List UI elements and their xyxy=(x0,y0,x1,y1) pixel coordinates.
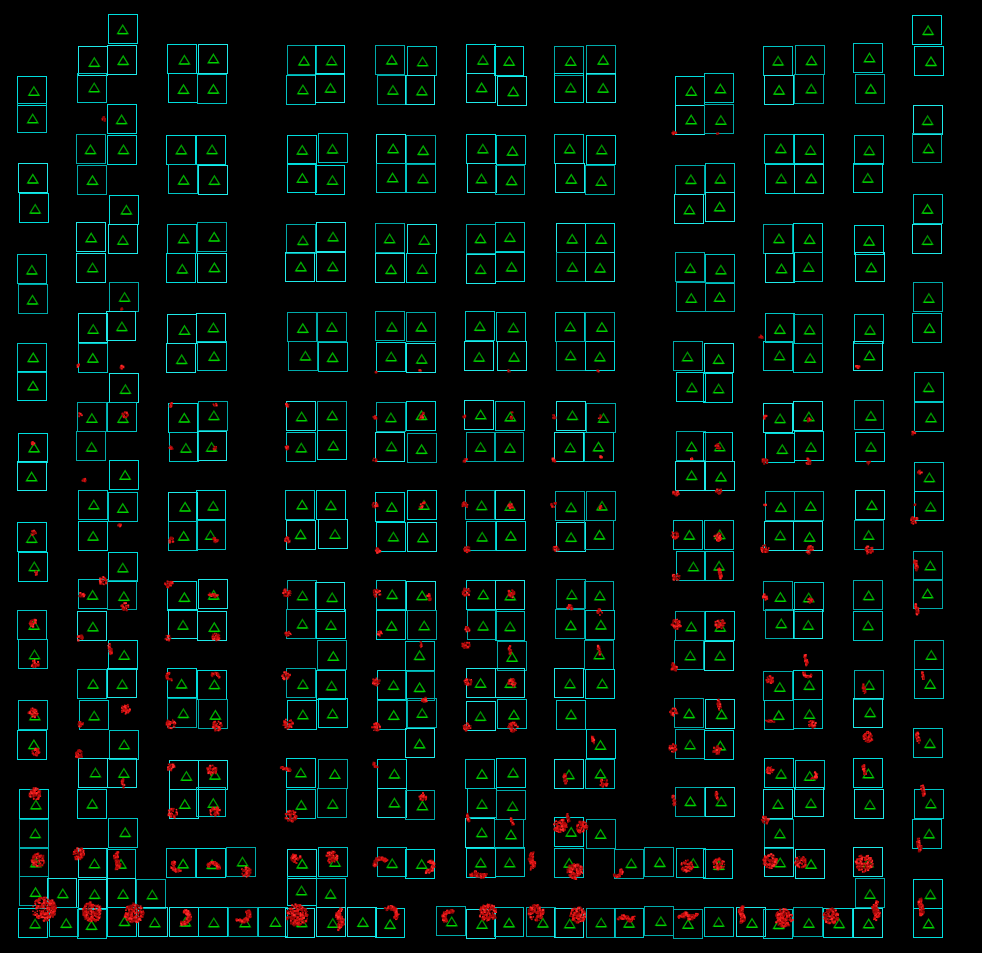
grid-cell-box xyxy=(138,907,168,937)
grid-cell-box xyxy=(795,760,825,790)
triangle-marker xyxy=(205,143,219,156)
triangle-marker xyxy=(802,261,816,274)
grid-cell-box xyxy=(675,252,705,282)
red-blob xyxy=(117,523,122,527)
triangle-marker xyxy=(503,500,517,513)
triangle-marker xyxy=(207,589,221,602)
grid-cell-box xyxy=(794,164,824,194)
grid-cell-box xyxy=(18,284,48,314)
grid-cell-box xyxy=(794,431,824,461)
grid-cell-box xyxy=(317,401,347,431)
grid-cell-box xyxy=(705,192,735,222)
grid-cell-box xyxy=(765,164,795,194)
triangle-marker xyxy=(326,917,340,930)
triangle-marker xyxy=(207,350,221,363)
grid-cell-box xyxy=(554,46,584,76)
triangle-marker xyxy=(415,707,429,720)
grid-cell-box xyxy=(17,610,47,640)
grid-cell-box xyxy=(407,610,437,640)
grid-cell-box xyxy=(106,878,136,908)
triangle-marker xyxy=(325,679,339,692)
triangle-marker xyxy=(862,235,876,248)
grid-cell-box xyxy=(676,431,706,461)
grid-cell-box xyxy=(584,640,614,670)
triangle-marker xyxy=(685,381,699,394)
triangle-marker xyxy=(206,52,220,65)
grid-cell-box xyxy=(167,314,197,344)
triangle-marker xyxy=(268,916,282,929)
grid-cell-box xyxy=(318,698,348,728)
triangle-marker xyxy=(683,262,697,275)
grid-cell-box xyxy=(376,580,406,610)
triangle-marker xyxy=(56,887,70,900)
triangle-marker xyxy=(864,83,878,96)
grid-cell-box xyxy=(914,372,944,402)
triangle-marker xyxy=(86,530,100,543)
grid-cell-box xyxy=(166,135,196,165)
grid-cell-box xyxy=(168,492,198,522)
grid-cell-box xyxy=(317,788,347,818)
triangle-marker xyxy=(28,917,42,930)
grid-cell-box xyxy=(198,401,228,431)
triangle-marker xyxy=(804,441,818,454)
triangle-marker xyxy=(504,828,518,841)
grid-cell-box xyxy=(169,432,199,462)
triangle-marker xyxy=(713,739,727,752)
grid-cell-box xyxy=(107,907,137,937)
triangle-marker xyxy=(921,587,935,600)
grid-cell-box xyxy=(675,461,705,491)
triangle-marker xyxy=(774,768,788,781)
grid-cell-box xyxy=(585,669,615,699)
grid-cell-box xyxy=(196,490,226,520)
triangle-marker xyxy=(595,321,609,334)
triangle-marker xyxy=(415,263,429,276)
triangle-marker xyxy=(86,620,100,633)
triangle-marker xyxy=(416,531,430,544)
triangle-marker xyxy=(594,619,608,632)
triangle-marker xyxy=(713,621,727,634)
grid-cell-box xyxy=(167,44,197,74)
grid-cell-box xyxy=(196,848,226,878)
triangle-marker xyxy=(386,84,400,97)
grid-cell-box xyxy=(375,223,405,253)
triangle-marker xyxy=(476,54,490,67)
grid-cell-box xyxy=(556,223,586,253)
grid-cell-box xyxy=(703,849,733,879)
triangle-marker xyxy=(86,261,100,274)
grid-cell-box xyxy=(854,789,884,819)
grid-cell-box xyxy=(78,490,108,520)
triangle-marker xyxy=(59,917,73,930)
grid-cell-box xyxy=(169,907,199,937)
triangle-marker xyxy=(295,410,309,423)
triangle-marker xyxy=(474,263,488,276)
triangle-marker xyxy=(682,529,696,542)
triangle-marker xyxy=(177,83,191,96)
triangle-marker xyxy=(804,172,818,185)
triangle-marker xyxy=(326,143,340,156)
triangle-marker xyxy=(178,501,192,514)
grid-cell-box xyxy=(168,609,198,639)
grid-cell-box xyxy=(554,817,584,847)
grid-cell-box xyxy=(585,341,615,371)
grid-cell-box xyxy=(109,460,139,490)
triangle-marker xyxy=(87,81,101,94)
grid-cell-box xyxy=(585,165,615,195)
triangle-marker xyxy=(25,264,39,277)
grid-cell-box xyxy=(375,253,405,283)
grid-cell-box xyxy=(436,906,466,936)
grid-cell-box xyxy=(556,579,586,609)
grid-cell-box xyxy=(19,819,49,849)
triangle-marker xyxy=(85,798,99,811)
triangle-marker xyxy=(863,324,877,337)
grid-cell-box xyxy=(555,609,585,639)
triangle-marker xyxy=(413,681,427,694)
grid-cell-box xyxy=(405,641,435,671)
grid-cell-box xyxy=(675,787,705,817)
triangle-marker xyxy=(594,767,608,780)
triangle-marker xyxy=(684,113,698,126)
triangle-marker xyxy=(204,529,218,542)
grid-cell-box xyxy=(406,135,436,165)
grid-cell-box xyxy=(495,668,525,698)
triangle-marker xyxy=(802,410,816,423)
triangle-marker xyxy=(296,234,310,247)
triangle-marker xyxy=(294,528,308,541)
grid-cell-box xyxy=(196,520,226,550)
grid-cell-box xyxy=(764,134,794,164)
triangle-marker xyxy=(416,144,430,157)
triangle-marker xyxy=(595,500,609,513)
grid-cell-box xyxy=(18,700,48,730)
red-blob xyxy=(803,654,808,666)
grid-cell-box xyxy=(406,253,436,283)
triangle-marker xyxy=(385,321,399,334)
grid-cell-box xyxy=(912,819,942,849)
triangle-marker xyxy=(562,768,576,781)
grid-cell-box xyxy=(675,76,705,106)
triangle-marker xyxy=(565,409,579,422)
triangle-marker xyxy=(384,350,398,363)
triangle-marker xyxy=(773,349,787,362)
grid-cell-box xyxy=(316,490,346,520)
triangle-marker xyxy=(563,320,577,333)
grid-cell-box xyxy=(107,402,137,432)
grid-cell-box xyxy=(585,223,615,253)
triangle-marker xyxy=(474,408,488,421)
triangle-marker xyxy=(921,203,935,216)
triangle-marker xyxy=(864,441,878,454)
grid-cell-box xyxy=(316,670,346,700)
triangle-marker xyxy=(383,232,397,245)
triangle-marker xyxy=(207,621,221,634)
triangle-marker xyxy=(386,142,400,155)
grid-cell-box xyxy=(674,640,704,670)
grid-cell-box xyxy=(106,849,136,879)
triangle-marker xyxy=(564,173,578,186)
triangle-marker xyxy=(325,409,339,422)
grid-cell-box xyxy=(614,849,644,879)
grid-cell-box xyxy=(467,788,497,818)
grid-cell-box xyxy=(109,195,139,225)
triangle-marker xyxy=(207,261,221,274)
grid-cell-box xyxy=(854,520,884,550)
grid-cell-box xyxy=(495,847,525,877)
triangle-marker xyxy=(145,888,159,901)
grid-cell-box xyxy=(316,222,346,252)
triangle-marker xyxy=(505,174,519,187)
triangle-marker xyxy=(115,113,129,126)
grid-cell-box xyxy=(405,790,435,820)
grid-cell-box xyxy=(495,165,525,195)
grid-cell-box xyxy=(795,849,825,879)
grid-cell-box xyxy=(108,224,138,254)
triangle-marker xyxy=(88,766,102,779)
triangle-marker xyxy=(772,918,786,931)
grid-cell-box xyxy=(108,640,138,670)
triangle-marker xyxy=(593,529,607,542)
grid-cell-box xyxy=(496,790,526,820)
grid-cell-box xyxy=(554,848,584,878)
grid-cell-box xyxy=(18,433,48,463)
grid-cell-box xyxy=(704,73,734,103)
grid-cell-box xyxy=(286,75,316,105)
triangle-marker xyxy=(27,85,41,98)
triangle-marker xyxy=(117,143,131,156)
grid-cell-box xyxy=(78,879,108,909)
triangle-marker xyxy=(924,411,938,424)
triangle-marker xyxy=(683,795,697,808)
grid-cell-box xyxy=(673,341,703,371)
triangle-marker xyxy=(387,679,401,692)
triangle-marker xyxy=(863,888,877,901)
grid-cell-box xyxy=(793,343,823,373)
grid-cell-box xyxy=(18,908,48,938)
triangle-marker xyxy=(177,54,191,67)
grid-cell-box xyxy=(554,668,584,698)
grid-cell-box xyxy=(107,104,137,134)
grid-cell-box xyxy=(464,341,494,371)
grid-cell-box xyxy=(108,492,138,522)
triangle-marker xyxy=(387,709,401,722)
grid-cell-box xyxy=(764,758,794,788)
triangle-marker xyxy=(686,560,700,573)
grid-cell-box xyxy=(644,906,674,936)
triangle-marker xyxy=(503,410,517,423)
triangle-marker xyxy=(503,677,517,690)
triangle-marker xyxy=(653,856,667,869)
triangle-marker xyxy=(594,739,608,752)
grid-cell-box xyxy=(853,908,883,938)
triangle-marker xyxy=(27,619,41,632)
grid-cell-box xyxy=(78,343,108,373)
triangle-marker xyxy=(415,409,429,422)
grid-cell-box xyxy=(466,580,496,610)
triangle-marker xyxy=(296,322,310,335)
triangle-marker xyxy=(923,888,937,901)
triangle-marker xyxy=(924,649,938,662)
grid-cell-box xyxy=(466,701,496,731)
grid-cell-box xyxy=(763,909,793,939)
grid-cell-box xyxy=(913,879,943,909)
grid-cell-box xyxy=(914,462,944,492)
triangle-marker xyxy=(682,707,696,720)
triangle-marker xyxy=(802,591,816,604)
triangle-marker xyxy=(326,260,340,273)
triangle-marker xyxy=(562,857,576,870)
triangle-marker xyxy=(506,321,520,334)
triangle-marker xyxy=(117,738,131,751)
grid-cell-box xyxy=(466,668,496,698)
triangle-marker xyxy=(507,708,521,721)
triangle-marker xyxy=(356,916,370,929)
triangle-marker xyxy=(26,173,40,186)
maze-canvas xyxy=(0,0,982,953)
grid-cell-box xyxy=(586,729,616,759)
triangle-marker xyxy=(772,84,786,97)
triangle-marker xyxy=(175,263,189,276)
triangle-marker xyxy=(325,54,339,67)
grid-cell-box xyxy=(585,610,615,640)
grid-cell-box xyxy=(763,341,793,371)
grid-cell-box xyxy=(77,402,107,432)
triangle-marker xyxy=(594,175,608,188)
grid-cell-box xyxy=(496,135,526,165)
triangle-marker xyxy=(295,916,309,929)
triangle-marker xyxy=(861,619,875,632)
grid-cell-box xyxy=(465,490,495,520)
triangle-marker xyxy=(207,916,221,929)
grid-cell-box xyxy=(584,520,614,550)
triangle-marker xyxy=(177,591,191,604)
grid-cell-box xyxy=(76,253,106,283)
triangle-marker xyxy=(324,499,338,512)
triangle-marker xyxy=(474,441,488,454)
grid-cell-box xyxy=(316,252,346,282)
grid-cell-box xyxy=(77,669,107,699)
triangle-marker xyxy=(296,678,310,691)
grid-cell-box xyxy=(853,758,883,788)
triangle-marker xyxy=(472,351,486,364)
triangle-marker xyxy=(29,798,43,811)
grid-cell-box xyxy=(226,847,256,877)
triangle-marker xyxy=(26,379,40,392)
grid-cell-box xyxy=(764,75,794,105)
triangle-marker xyxy=(712,382,726,395)
grid-cell-box xyxy=(793,223,823,253)
grid-cell-box xyxy=(78,46,108,76)
triangle-marker xyxy=(474,710,488,723)
triangle-marker xyxy=(87,56,101,69)
triangle-marker xyxy=(864,410,878,423)
triangle-marker xyxy=(564,531,578,544)
triangle-marker xyxy=(28,709,42,722)
triangle-marker xyxy=(593,262,607,275)
triangle-marker xyxy=(713,440,727,453)
grid-cell-box xyxy=(793,252,823,282)
grid-cell-box xyxy=(794,491,824,521)
grid-cell-box xyxy=(586,73,616,103)
grid-cell-box xyxy=(676,282,706,312)
triangle-marker xyxy=(294,766,308,779)
triangle-marker xyxy=(178,798,192,811)
grid-cell-box xyxy=(167,698,197,728)
triangle-marker xyxy=(506,766,520,779)
triangle-marker xyxy=(624,857,638,870)
triangle-marker xyxy=(416,172,430,185)
triangle-marker xyxy=(29,856,43,869)
triangle-marker xyxy=(863,706,877,719)
triangle-marker xyxy=(713,200,727,213)
triangle-marker xyxy=(295,858,309,871)
grid-cell-box xyxy=(914,46,944,76)
triangle-marker xyxy=(175,353,189,366)
triangle-marker xyxy=(506,85,520,98)
triangle-marker xyxy=(116,234,130,247)
triangle-marker xyxy=(328,528,342,541)
triangle-marker xyxy=(85,412,99,425)
grid-cell-box xyxy=(494,907,524,937)
grid-cell-box xyxy=(197,670,227,700)
triangle-marker xyxy=(474,677,488,690)
grid-cell-box xyxy=(108,552,138,582)
triangle-marker xyxy=(28,648,42,661)
triangle-marker xyxy=(684,620,698,633)
grid-cell-box xyxy=(763,403,793,433)
grid-cell-box xyxy=(317,640,347,670)
grid-cell-box xyxy=(197,74,227,104)
grid-cell-box xyxy=(586,403,616,433)
grid-cell-box xyxy=(913,105,943,135)
triangle-marker xyxy=(116,561,130,574)
grid-cell-box xyxy=(704,343,734,373)
grid-cell-box xyxy=(19,876,49,906)
grid-cell-box xyxy=(376,134,406,164)
triangle-marker xyxy=(564,55,578,68)
grid-cell-box xyxy=(407,522,437,552)
grid-cell-box xyxy=(315,165,345,195)
grid-cell-box xyxy=(406,343,436,373)
grid-cell-box xyxy=(853,163,883,193)
grid-cell-box xyxy=(854,314,884,344)
grid-cell-box xyxy=(407,46,437,76)
triangle-marker xyxy=(207,174,221,187)
triangle-marker xyxy=(505,261,519,274)
grid-cell-box xyxy=(376,402,406,432)
triangle-marker xyxy=(328,856,342,869)
triangle-marker xyxy=(413,737,427,750)
triangle-marker xyxy=(593,350,607,363)
grid-cell-box xyxy=(853,341,883,371)
grid-cell-box xyxy=(674,698,704,728)
triangle-marker xyxy=(712,353,726,366)
triangle-marker xyxy=(714,114,728,127)
grid-cell-box xyxy=(912,313,942,343)
grid-cell-box xyxy=(913,579,943,609)
red-blob xyxy=(528,851,537,870)
grid-cell-box xyxy=(466,432,496,462)
triangle-marker xyxy=(923,559,937,572)
triangle-marker xyxy=(87,498,101,511)
triangle-marker xyxy=(206,83,220,96)
grid-cell-box xyxy=(793,907,823,937)
red-blob xyxy=(461,642,470,649)
triangle-marker xyxy=(506,800,520,813)
triangle-marker xyxy=(176,707,190,720)
triangle-marker xyxy=(176,619,190,632)
